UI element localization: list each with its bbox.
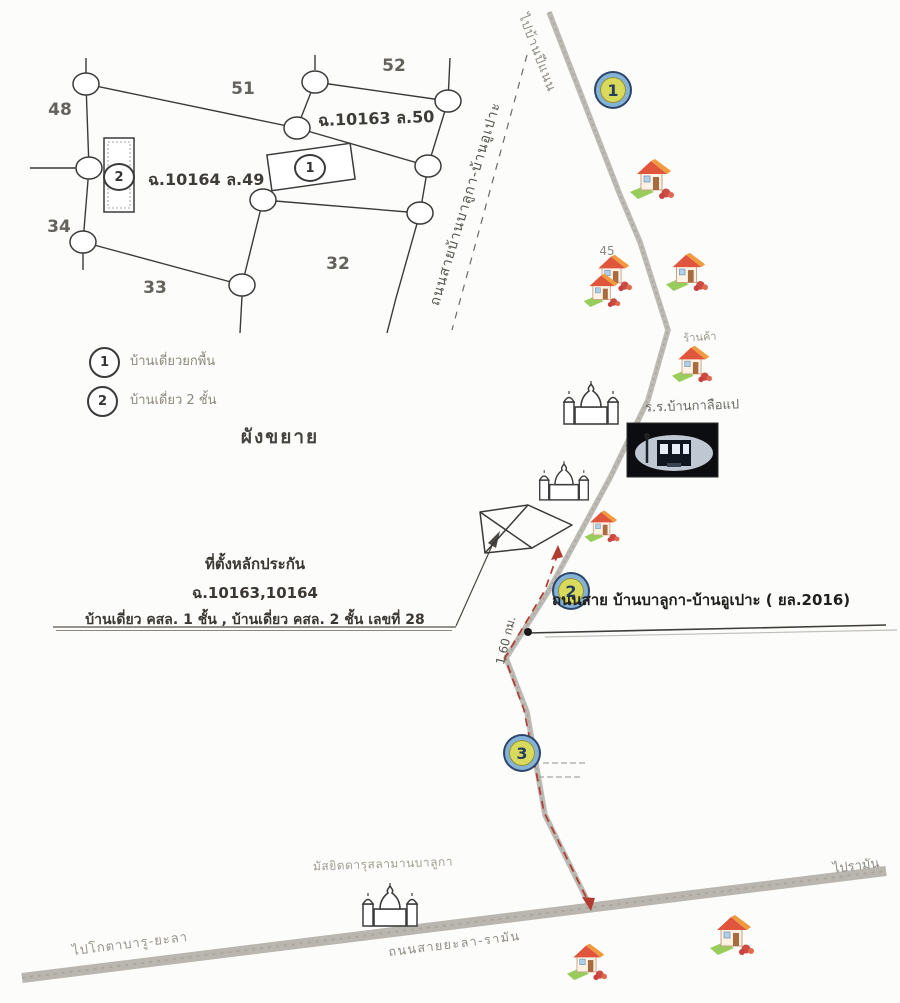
parcel-52-label: 52: [382, 57, 406, 77]
junction-dot: [524, 628, 532, 636]
collateral-note-deeds: ฉ.10163,10164: [40, 581, 470, 605]
legend-marker-2: 2: [87, 386, 118, 417]
house-45-label: 45: [599, 245, 614, 259]
mosque-icon: [540, 461, 589, 500]
shop-label: ร้านค้า: [683, 331, 717, 346]
parcel-48-label: 48: [48, 101, 72, 121]
legend-label-2: บ้านเดี่ยว 2 ชั้น: [130, 394, 217, 409]
parcel-32-label: 32: [326, 255, 350, 275]
parcel-51-label: 51: [231, 80, 255, 100]
note-leader-arrowhead: [488, 531, 500, 548]
parcel-34-label: 34: [47, 218, 71, 238]
house-icon: [666, 253, 708, 291]
parcel-33-label: 33: [143, 279, 167, 299]
house-icon: [567, 944, 607, 980]
inset-building-marker-1: 1: [294, 154, 326, 182]
route-badge-1: 1: [596, 73, 630, 107]
scanned-map-page: 48 51 52 34 33 32 ฉ.10163 ล.50 ฉ.10164 ล…: [0, 0, 900, 1003]
legend-label-1: บ้านเดี่ยวยกพื้น: [130, 355, 215, 370]
collateral-note-title: ที่ตั้งหลักประกัน: [40, 552, 470, 576]
road-2016-label: ถนนสาย บ้านบาลูกา-บ้านอูเปาะ ( ยล.2016): [552, 592, 850, 609]
map-linework: [0, 0, 900, 1003]
deed-10164-label: ฉ.10164 ล.49: [148, 171, 264, 189]
collateral-note: ที่ตั้งหลักประกัน ฉ.10163,10164 บ้านเดี่…: [40, 552, 470, 631]
route-arrowhead-up: [551, 545, 563, 560]
inset-title: ผังขยาย: [241, 427, 319, 449]
mosque-icon: [363, 883, 417, 926]
legend-marker-1: 1: [89, 347, 120, 378]
inset-building-marker-2: 2: [103, 163, 135, 191]
route-badge-3: 3: [505, 736, 539, 770]
house-icon: [672, 346, 712, 382]
mosque-icon: [564, 381, 618, 424]
house-icon: [710, 915, 754, 955]
collateral-note-detail: บ้านเดี่ยว คสล. 1 ชั้น , บ้านเดี่ยว คสล.…: [40, 609, 470, 631]
house-icon: [630, 159, 674, 199]
school-photo-image: [627, 423, 718, 477]
